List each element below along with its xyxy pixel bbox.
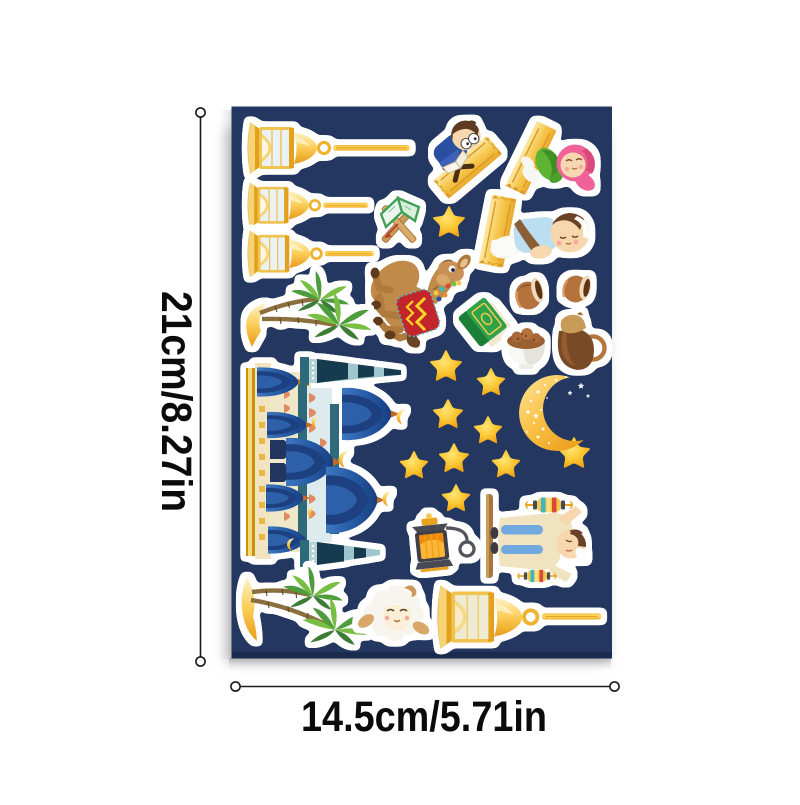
svg-text:14.5cm/5.71in: 14.5cm/5.71in [301, 693, 547, 741]
svg-text:21cm/8.27in: 21cm/8.27in [152, 291, 200, 512]
